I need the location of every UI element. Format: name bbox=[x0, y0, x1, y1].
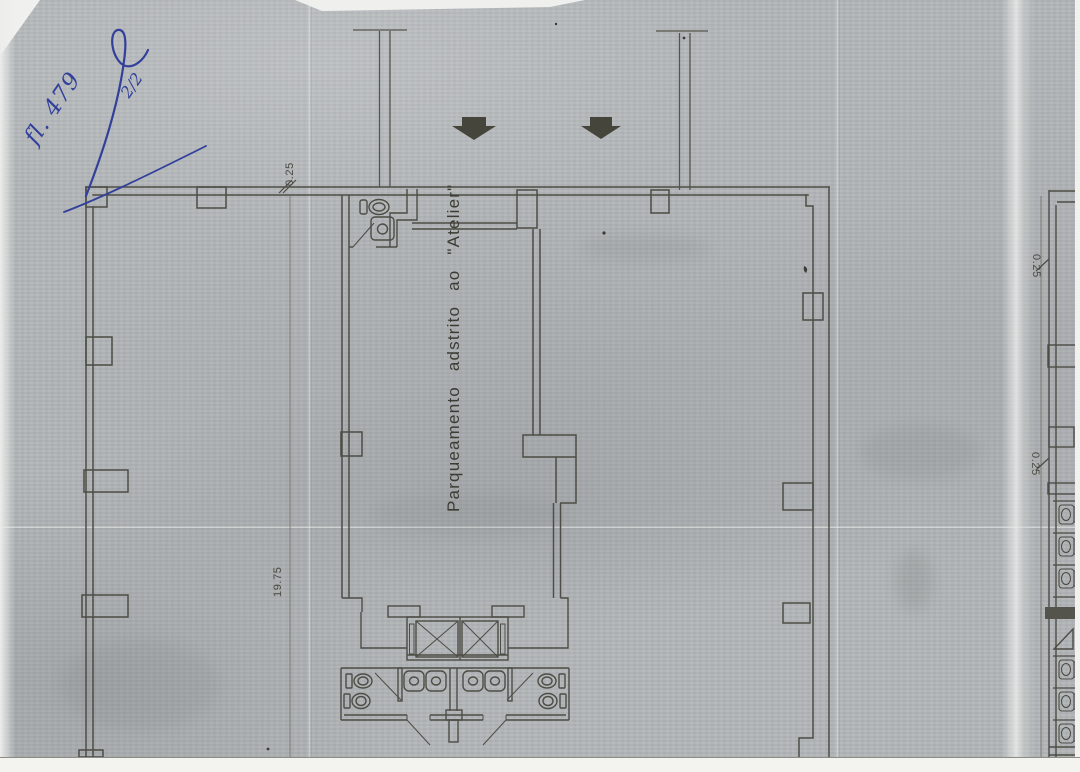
signature-stroke bbox=[64, 30, 206, 212]
wall-pilaster bbox=[783, 483, 813, 510]
sink-icon bbox=[404, 671, 424, 691]
sheet-number-text: fl. 479 bbox=[18, 67, 86, 151]
wall-pilaster bbox=[82, 595, 128, 617]
duct-projection-right bbox=[656, 31, 708, 190]
left-wall bbox=[86, 187, 93, 757]
right-wall bbox=[799, 187, 829, 757]
wall-pilaster bbox=[84, 470, 128, 492]
paper-fold-right bbox=[1002, 0, 1034, 757]
ink-specks bbox=[267, 23, 808, 751]
toilet-icon bbox=[539, 694, 566, 709]
wall-pilaster bbox=[197, 187, 226, 208]
door-swing-icon bbox=[507, 673, 533, 700]
toilet-icon bbox=[346, 674, 372, 688]
duct-projection-left bbox=[353, 30, 407, 187]
wall-pilaster bbox=[523, 435, 576, 457]
wall-pilaster bbox=[341, 432, 362, 456]
wall-pilaster bbox=[651, 190, 669, 213]
toilet-icon bbox=[344, 694, 370, 709]
floor-plan-svg: Parqueamento adstrito ao "Atelier" 0.25 … bbox=[0, 0, 1080, 772]
toilet-icon bbox=[538, 674, 565, 688]
upper-bathroom bbox=[349, 189, 417, 247]
wall-pilaster bbox=[1048, 345, 1078, 367]
wall-pilaster bbox=[86, 337, 112, 365]
elevator-shaft bbox=[410, 621, 459, 657]
wall-pilaster bbox=[79, 750, 103, 757]
door-swing-icon bbox=[407, 720, 506, 745]
toilet-icon bbox=[360, 200, 389, 215]
scan-edge-left bbox=[0, 0, 15, 757]
door-swing-icon bbox=[375, 673, 401, 700]
dimension-line-left bbox=[279, 180, 296, 757]
sink-icon bbox=[426, 671, 446, 691]
down-arrow-icon bbox=[452, 117, 496, 140]
scan-edge-bottom bbox=[0, 757, 1080, 772]
parking-area-label: Parqueamento adstrito ao "Atelier" bbox=[444, 184, 463, 512]
dimension-line-right bbox=[1036, 196, 1049, 757]
elevator-shaft bbox=[462, 621, 505, 657]
stair-arrow-icon bbox=[1054, 629, 1073, 649]
scan-edge-right bbox=[1075, 0, 1080, 757]
handwritten-annotation: fl. 479 2/2 bbox=[18, 30, 206, 212]
wall-pilaster bbox=[1049, 427, 1074, 447]
sink-icon bbox=[463, 671, 483, 691]
dimension-label-left-height: 19.75 bbox=[272, 566, 284, 597]
restrooms-block bbox=[341, 668, 569, 745]
down-arrow-icon bbox=[581, 117, 621, 139]
scanned-floor-plan-page: Parqueamento adstrito ao "Atelier" 0.25 … bbox=[0, 0, 1080, 772]
dimension-label-top-left: 0.25 bbox=[284, 162, 296, 186]
elevator-core bbox=[342, 598, 568, 660]
sink-icon bbox=[485, 671, 505, 691]
wall-pilaster bbox=[783, 603, 810, 623]
